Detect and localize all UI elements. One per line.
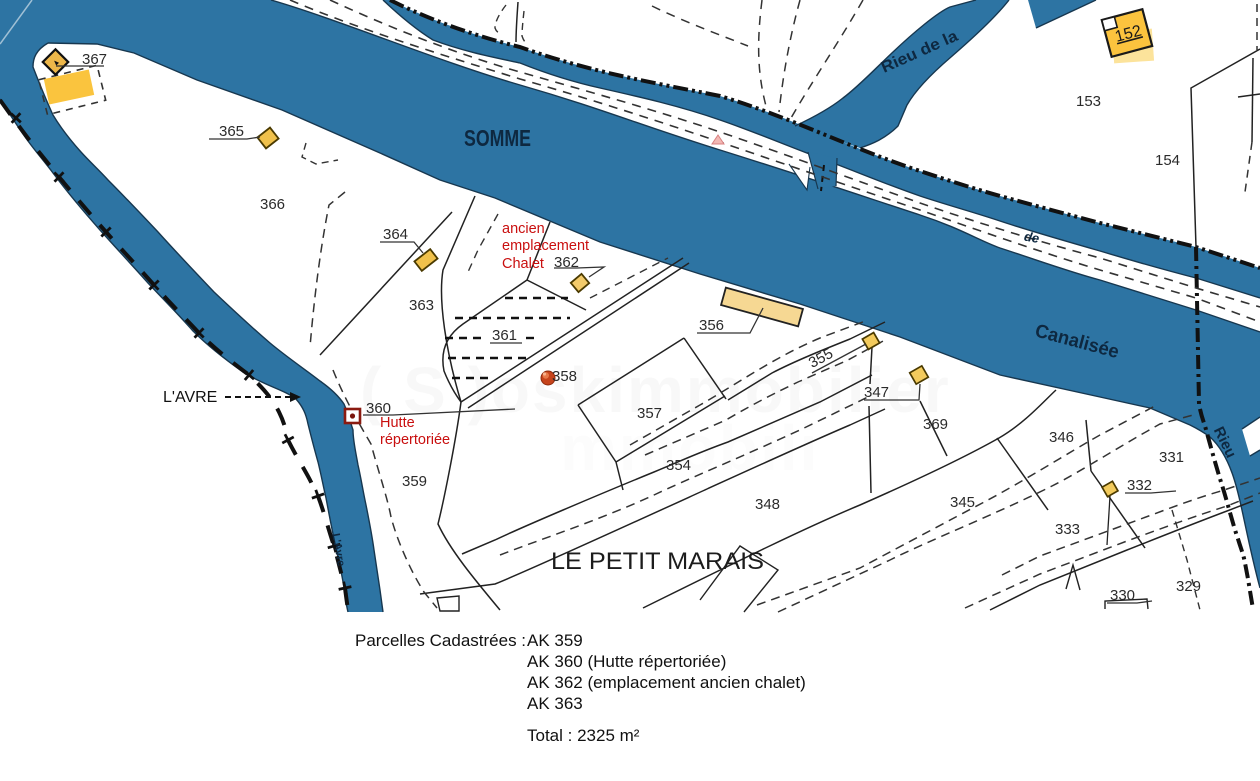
svg-text:AK 360 (Hutte répertoriée): AK 360 (Hutte répertoriée) [527,652,726,671]
svg-text:369: 369 [923,416,948,433]
svg-text:LE PETIT MARAIS: LE PETIT MARAIS [551,548,764,575]
svg-text:347: 347 [864,384,889,401]
svg-text:ancien: ancien [502,221,545,237]
svg-text:Parcelles Cadastrées :: Parcelles Cadastrées : [355,631,526,650]
svg-text:366: 366 [260,196,285,213]
svg-text:AK 362 (emplacement ancien cha: AK 362 (emplacement ancien chalet) [527,673,806,692]
svg-text:357: 357 [637,405,662,422]
svg-text:AK 359: AK 359 [527,631,583,650]
svg-text:356: 356 [699,317,724,334]
svg-text:AK 363: AK 363 [527,694,583,713]
svg-text:153: 153 [1076,93,1101,110]
svg-text:154: 154 [1155,152,1180,169]
svg-text:348: 348 [755,496,780,513]
svg-text:354: 354 [666,457,691,474]
svg-text:367: 367 [82,51,107,68]
svg-text:emplacement: emplacement [502,238,589,254]
svg-text:363: 363 [409,297,434,314]
svg-text:346: 346 [1049,429,1074,446]
svg-text:SOMME: SOMME [464,125,531,151]
svg-text:362: 362 [554,254,579,271]
svg-text:Chalet: Chalet [502,256,544,272]
svg-text:329: 329 [1176,578,1201,595]
svg-text:332: 332 [1127,477,1152,494]
svg-text:361: 361 [492,327,517,344]
svg-text:L'AVRE: L'AVRE [163,389,217,406]
svg-text:331: 331 [1159,449,1184,466]
svg-text:365: 365 [219,123,244,140]
svg-text:358: 358 [552,368,577,385]
svg-text:330: 330 [1110,587,1135,604]
svg-text:364: 364 [383,226,408,243]
svg-text:répertoriée: répertoriée [380,432,450,448]
svg-text:333: 333 [1055,521,1080,538]
svg-text:de: de [1023,229,1041,246]
svg-text:Total : 2325 m²: Total : 2325 m² [527,726,640,745]
svg-text:Hutte: Hutte [380,415,415,431]
svg-text:345: 345 [950,494,975,511]
svg-text:359: 359 [402,473,427,490]
